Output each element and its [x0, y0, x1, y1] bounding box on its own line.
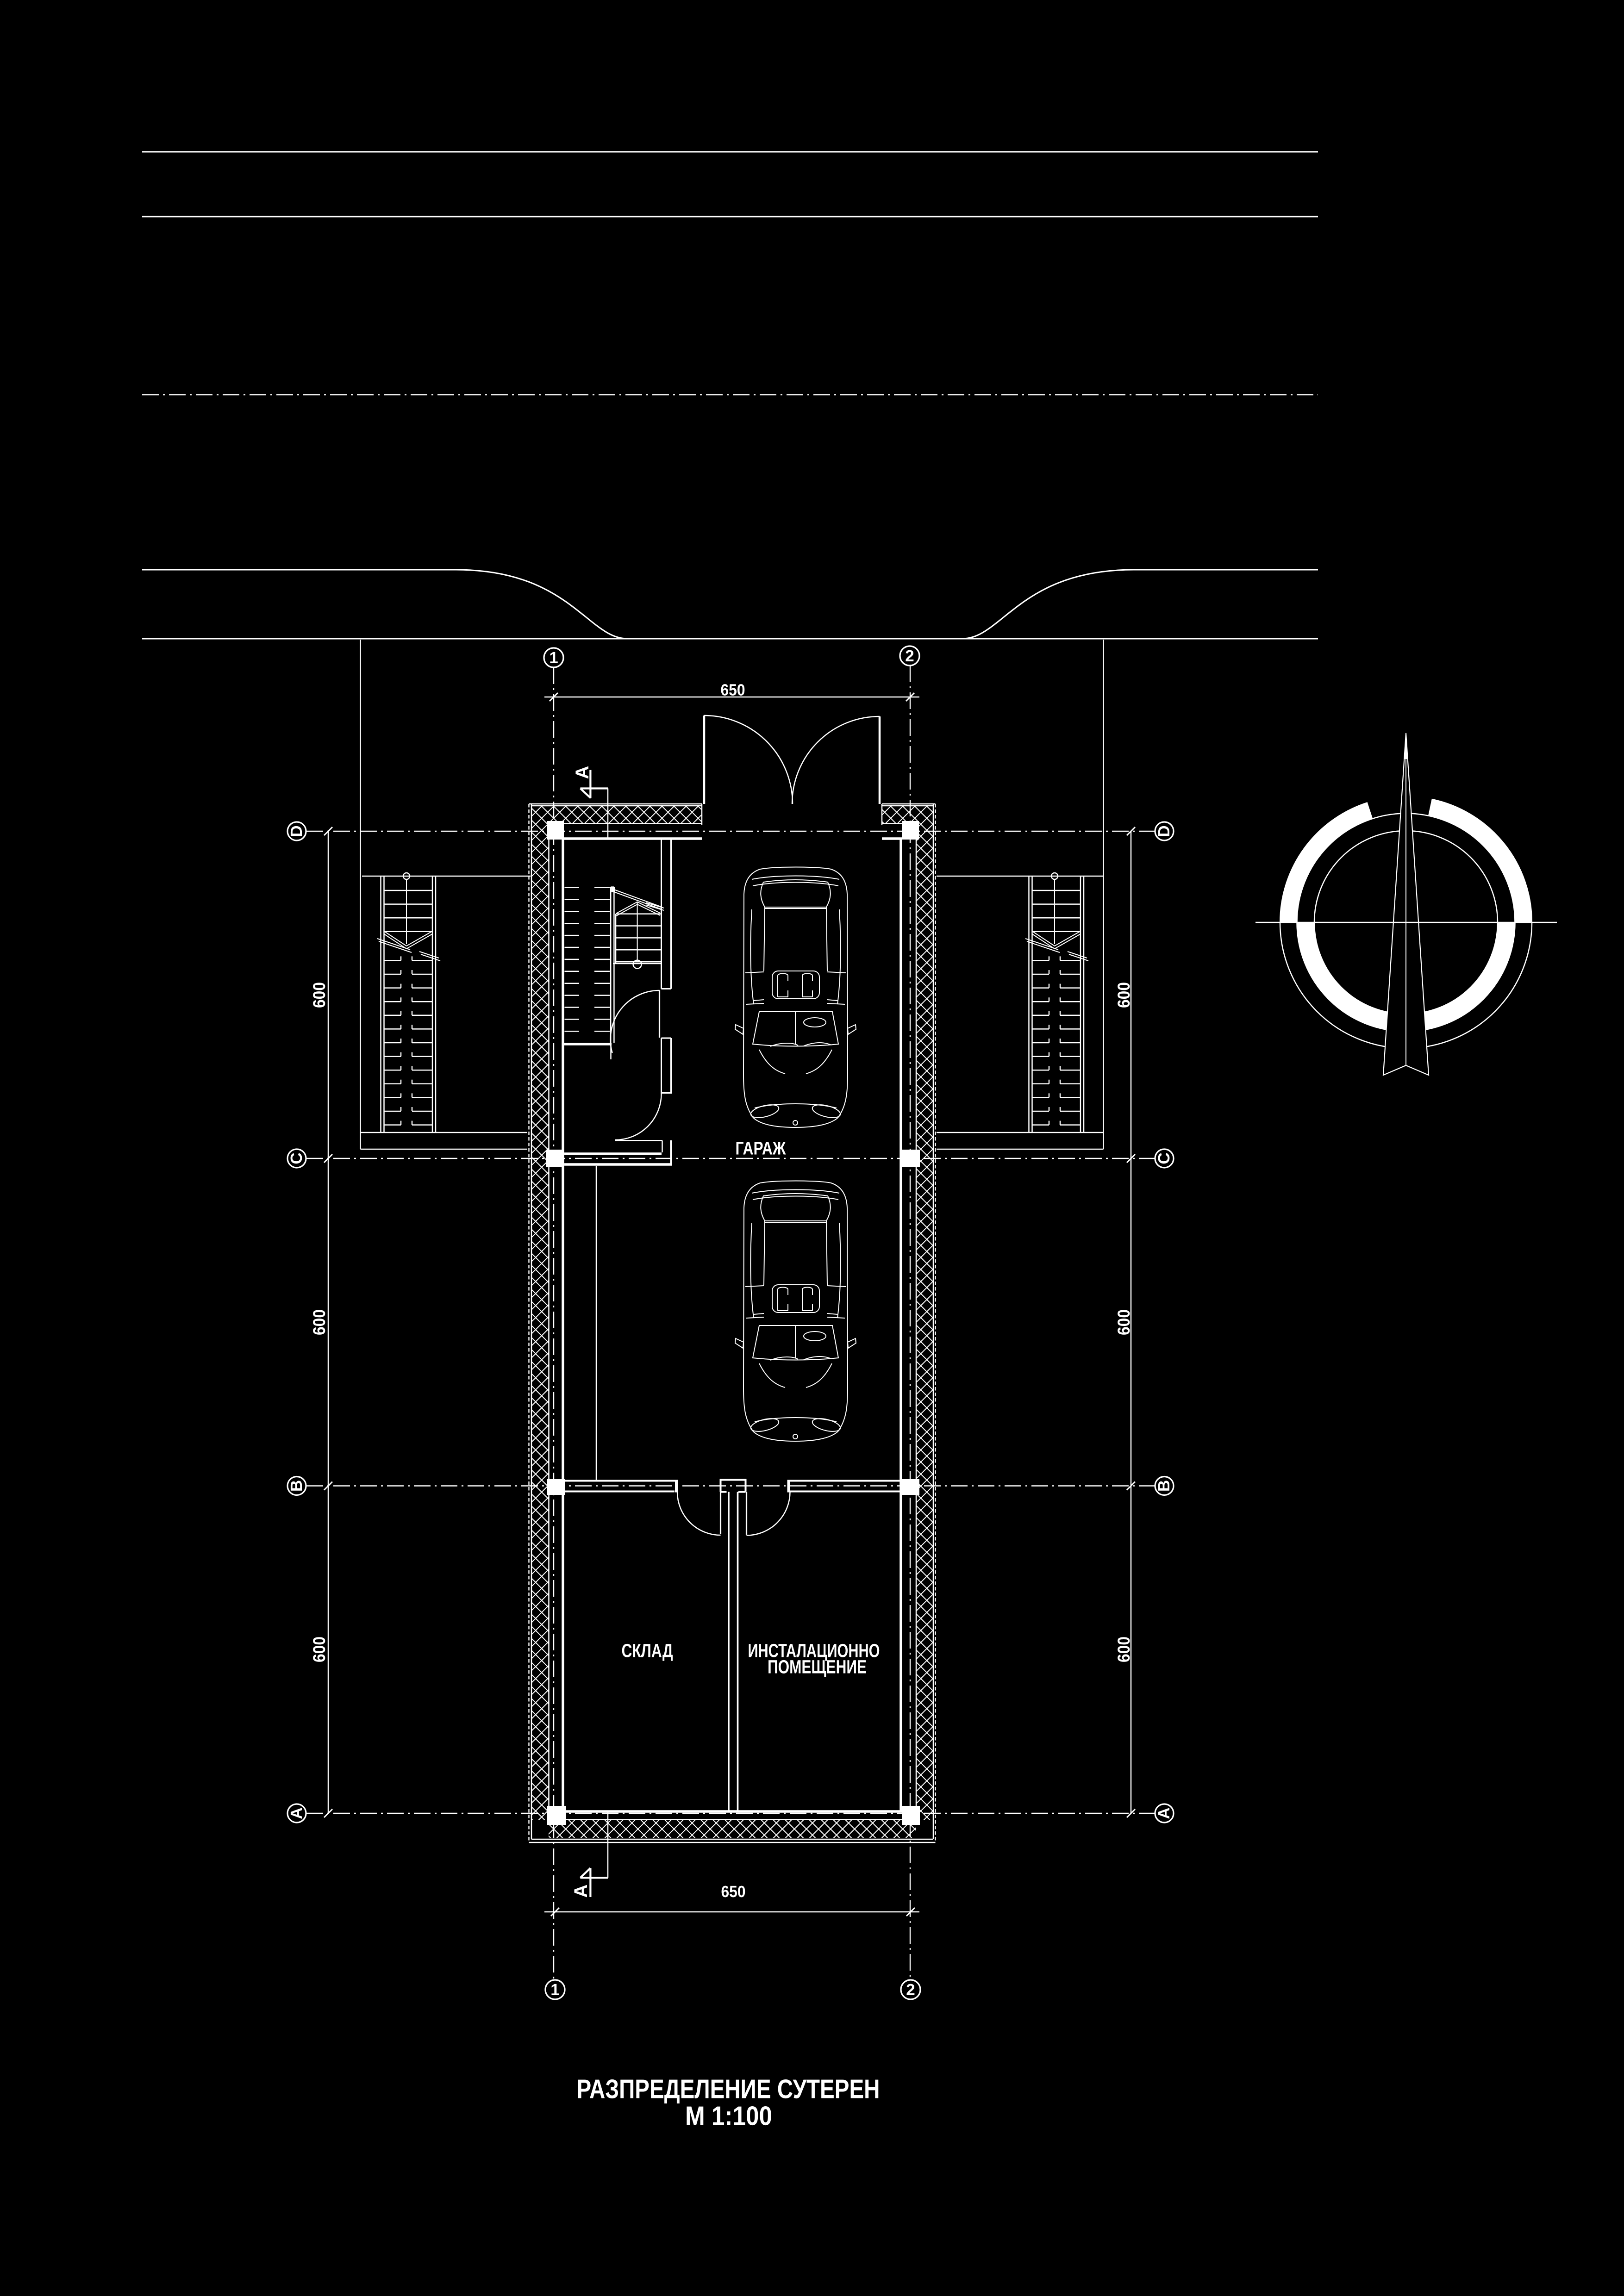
- svg-text:СКЛАД: СКЛАД: [622, 1640, 673, 1661]
- svg-text:A: A: [287, 1807, 306, 1819]
- svg-text:2: 2: [905, 647, 914, 665]
- svg-text:D: D: [1155, 825, 1173, 837]
- svg-text:600: 600: [1114, 982, 1133, 1008]
- svg-text:600: 600: [310, 1636, 329, 1662]
- svg-text:C: C: [287, 1152, 306, 1164]
- svg-text:650: 650: [721, 1883, 746, 1901]
- svg-text:600: 600: [310, 982, 329, 1008]
- svg-text:ГАРАЖ: ГАРАЖ: [736, 1139, 787, 1159]
- svg-text:М 1:100: М 1:100: [685, 2101, 772, 2131]
- svg-text:600: 600: [1114, 1636, 1133, 1662]
- svg-text:D: D: [287, 825, 306, 837]
- svg-text:A: A: [1155, 1807, 1173, 1819]
- svg-text:1: 1: [549, 649, 558, 667]
- svg-text:C: C: [1155, 1152, 1173, 1164]
- svg-text:А: А: [571, 1885, 591, 1898]
- svg-text:600: 600: [310, 1309, 329, 1335]
- svg-text:650: 650: [721, 681, 745, 699]
- svg-text:B: B: [287, 1480, 306, 1492]
- svg-text:B: B: [1155, 1480, 1173, 1492]
- svg-text:РАЗПРЕДЕЛЕНИЕ СУТЕРЕН: РАЗПРЕДЕЛЕНИЕ СУТЕРЕН: [577, 2074, 880, 2104]
- svg-text:ПОМЕЩЕНИЕ: ПОМЕЩЕНИЕ: [768, 1656, 867, 1678]
- svg-text:А: А: [572, 766, 593, 779]
- svg-text:1: 1: [550, 1981, 559, 1999]
- svg-text:600: 600: [1114, 1309, 1133, 1335]
- svg-text:2: 2: [906, 1981, 915, 1999]
